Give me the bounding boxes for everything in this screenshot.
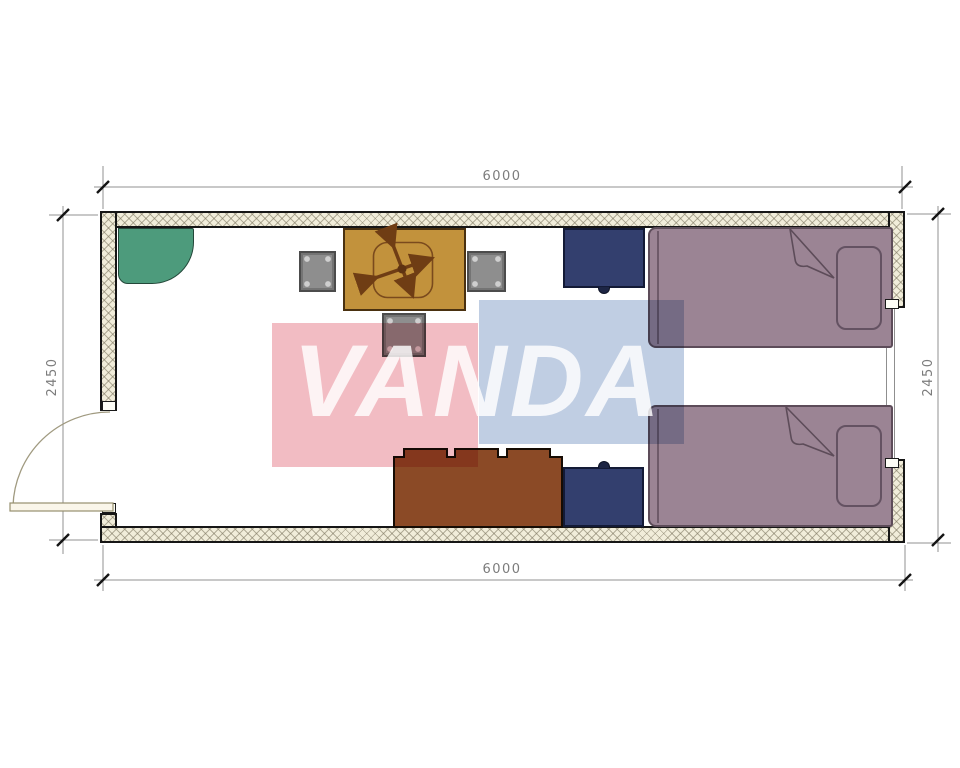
dim-label-left: 2450 (42, 337, 62, 417)
wall-left-upper (100, 211, 117, 411)
corner-cabinet (118, 228, 194, 284)
dim-label-top: 6000 (452, 168, 552, 184)
window-jamb-bottom (885, 458, 899, 468)
door-jamb-top (102, 401, 116, 411)
pillow (836, 425, 882, 507)
dim-label-bottom: 6000 (452, 561, 552, 577)
floor-plan-canvas: 6000 6000 2450 2450 VANDA (0, 0, 960, 768)
nightstand-bottom (563, 467, 644, 527)
stool-right (467, 251, 506, 292)
sofa-cushion (506, 448, 551, 458)
window-jamb-top (885, 299, 899, 309)
nightstand-knob (598, 461, 610, 468)
pillow (836, 246, 882, 330)
wall-bottom (100, 526, 905, 543)
wall-top (100, 211, 905, 228)
nightstand-top (563, 228, 645, 288)
table (343, 228, 466, 311)
door-jamb-bottom (102, 503, 116, 513)
dim-label-right: 2450 (918, 337, 938, 417)
watermark-text: VANDA (268, 316, 688, 446)
nightstand-knob (598, 287, 610, 294)
door-swing (10, 412, 113, 511)
stool-left (299, 251, 336, 292)
